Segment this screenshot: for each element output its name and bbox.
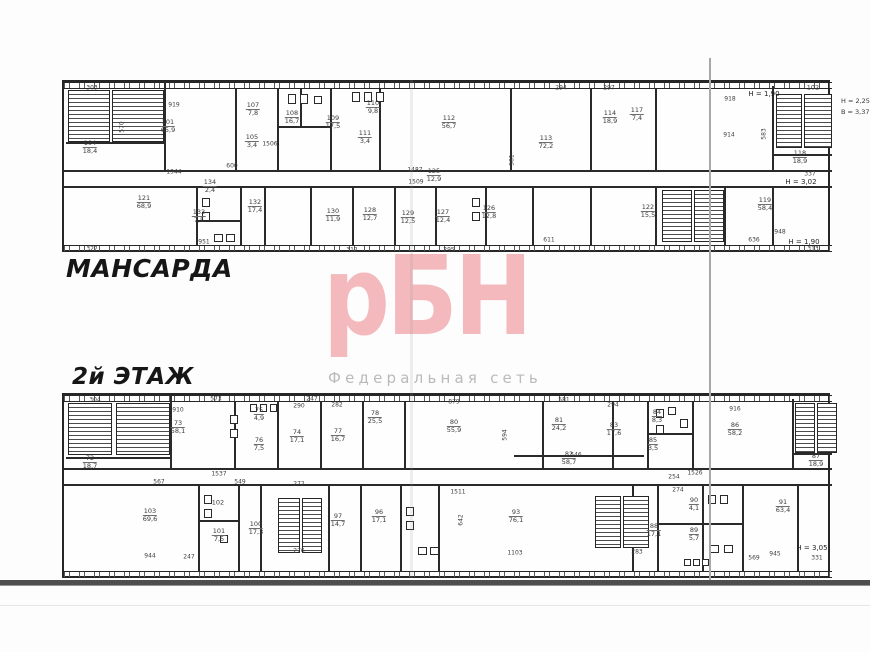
dimension-label: 916	[729, 406, 740, 413]
stairwell	[623, 496, 649, 548]
room-label: 13217,4	[248, 199, 262, 215]
dimension-label: 1103	[507, 550, 522, 557]
floorplan-2nd-floor: 7218,77358,1754,9767,57417,17716,77825,5…	[62, 393, 830, 578]
interior-wall	[438, 486, 440, 571]
dimension-label: 910	[172, 407, 183, 414]
dimension-label: 919	[168, 102, 179, 109]
room-label: 9617,1	[372, 509, 386, 525]
dimension-label: 546	[570, 452, 581, 459]
dimension-label: 1506	[262, 141, 277, 148]
room-label: 9714,7	[331, 513, 345, 529]
dimension-label: 331	[811, 555, 822, 562]
dimension-label: 951	[198, 239, 209, 246]
wc-fixture	[230, 429, 238, 438]
interior-wall	[277, 402, 279, 468]
dimension-label: 918	[724, 96, 735, 103]
room-label: 13011,9	[326, 208, 340, 224]
room-label: 895,7	[689, 527, 699, 543]
plan-label-2nd-floor: 2й ЭТАЖ	[72, 364, 194, 390]
interior-wall	[797, 486, 799, 571]
interior-wall	[590, 89, 592, 170]
interior-wall	[277, 89, 279, 170]
interior-wall	[64, 468, 832, 470]
dimension-label: 583	[761, 128, 768, 139]
room-label: 102	[212, 499, 224, 506]
wc-fixture	[656, 425, 664, 434]
height-annotation: Н = 1,90	[788, 238, 819, 246]
wc-fixture	[668, 407, 676, 415]
fold-crease-line	[709, 58, 711, 586]
watermark-subtitle: Федеральная сеть	[328, 369, 542, 387]
interior-wall	[655, 89, 657, 170]
plan-label-mansarda: МАНСАРДА	[66, 254, 233, 283]
dimension-label: 294	[555, 85, 566, 92]
room-label: 7716,7	[331, 428, 345, 444]
interior-wall	[310, 188, 312, 246]
margin-height-annotation: Н = 2,25 В = 3,37	[841, 96, 870, 118]
room-label: 7218,7	[83, 455, 97, 471]
wc-fixture	[702, 559, 709, 566]
room-label: 11958,4	[758, 197, 772, 213]
dimension-label: 1511	[450, 489, 465, 496]
room-label: 8055,9	[447, 419, 461, 435]
wc-fixture	[202, 198, 210, 207]
height-annotation: Н = 3,02	[785, 178, 816, 186]
interior-wall	[235, 89, 237, 170]
watermark-logo: рБН	[323, 241, 529, 351]
room-label: 10165,9	[161, 119, 175, 135]
room-label: 11818,9	[793, 150, 807, 166]
interior-wall	[647, 433, 692, 435]
room-label: 12168,9	[137, 195, 151, 211]
room-label: 7358,1	[171, 420, 185, 436]
room-label: 10369,6	[143, 508, 157, 524]
room-label: 1077,8	[246, 102, 260, 118]
dimension-label: 276	[293, 548, 304, 555]
stairwell	[112, 90, 164, 142]
interior-wall	[792, 399, 794, 470]
room-label: 8658,2	[728, 422, 742, 438]
wc-fixture	[214, 234, 223, 242]
dimension-label: 573	[210, 396, 221, 403]
room-label: 11372,2	[539, 135, 553, 151]
room-label: 853,5	[648, 437, 658, 453]
room-label: 12612,8	[482, 205, 496, 221]
interior-wall	[772, 188, 774, 246]
room-label: 754,9	[254, 407, 264, 423]
interior-wall	[362, 402, 364, 468]
interior-wall	[692, 402, 694, 468]
wc-fixture	[314, 96, 322, 104]
interior-wall	[772, 86, 774, 172]
room-label: 1342,4	[203, 179, 217, 195]
dimension-label: 247	[183, 554, 194, 561]
dimension-label: 283	[631, 549, 642, 556]
dimension-label: 290	[293, 403, 304, 410]
room-label: 848,3	[652, 409, 662, 425]
dimension-label: 945	[769, 551, 780, 558]
stairwell	[662, 190, 692, 242]
room-label: 1017,5	[212, 528, 226, 544]
room-label: 10017,3	[249, 521, 263, 537]
dimension-label: 294	[607, 402, 618, 409]
interior-wall	[198, 486, 200, 571]
dimension-label: 337	[804, 171, 815, 178]
room-label: 12712,4	[436, 209, 450, 225]
dimension-label: 570	[119, 121, 126, 132]
interior-wall	[264, 188, 266, 246]
page-bottom-edge	[0, 605, 870, 606]
interior-wall	[66, 142, 166, 144]
interior-wall	[64, 484, 832, 486]
interior-wall	[240, 188, 242, 246]
interior-wall	[532, 188, 534, 246]
dimension-label: 567	[153, 479, 164, 486]
dimension-label: 594	[502, 429, 509, 440]
room-label: 12812,7	[363, 207, 377, 223]
wc-fixture	[288, 94, 296, 104]
wc-fixture	[418, 547, 427, 555]
dimension-label: 313	[807, 246, 818, 253]
stairwell	[776, 94, 802, 148]
dimension-label: 1526	[687, 470, 702, 477]
height-note-line2: В = 3,37	[841, 107, 870, 118]
wc-fixture	[270, 404, 277, 412]
wc-fixture	[720, 495, 728, 504]
room-label: 1113,4	[358, 130, 372, 146]
wc-fixture	[204, 509, 212, 518]
wc-fixture	[724, 545, 733, 553]
dimension-label: 600	[226, 163, 237, 170]
dimension-label: 272	[293, 481, 304, 488]
interior-wall	[542, 402, 544, 468]
paper-crease	[410, 80, 413, 578]
interior-wall	[320, 402, 322, 468]
room-label: 9163,4	[776, 499, 790, 515]
wc-fixture	[693, 559, 700, 566]
window-band	[64, 571, 832, 578]
room-label: 8817,1	[647, 523, 661, 539]
room-label: 7417,1	[290, 429, 304, 445]
dimension-label: 304	[89, 397, 100, 404]
room-label: 12912,5	[401, 210, 415, 226]
room-label: 12512,9	[427, 168, 441, 184]
interior-wall	[724, 188, 726, 246]
room-label: 10917,5	[326, 115, 340, 131]
interior-wall	[404, 402, 406, 468]
interior-wall	[590, 188, 592, 246]
room-label: 1177,4	[630, 107, 644, 123]
room-label: 767,5	[254, 437, 264, 453]
stairwell	[817, 403, 837, 453]
dimension-label: 247	[306, 396, 317, 403]
dimension-label: 944	[144, 553, 155, 560]
wc-fixture	[300, 94, 308, 104]
dimension-label: 303	[86, 85, 97, 92]
dimension-label: 282	[331, 402, 342, 409]
dimension-label: 322	[86, 246, 97, 253]
dimension-label: 611	[543, 237, 554, 244]
wc-fixture	[680, 419, 688, 428]
room-label: 11256,7	[442, 115, 456, 131]
stairwell	[116, 403, 170, 455]
room-label: 7825,5	[368, 410, 382, 426]
stairwell	[804, 94, 832, 148]
scanned-floorplan-page: 10418,410165,91077,81053,410816,710917,5…	[0, 0, 870, 652]
stairwell	[795, 403, 815, 453]
dimension-label: 254	[668, 474, 679, 481]
height-annotation: Н = 1,90	[748, 90, 779, 98]
interior-wall	[360, 486, 362, 571]
wc-fixture	[230, 415, 238, 424]
interior-wall	[64, 186, 832, 188]
room-label: 102	[807, 84, 819, 91]
wc-fixture	[472, 212, 480, 221]
stairwell	[595, 496, 621, 548]
wc-fixture	[710, 545, 719, 553]
dimension-label: 636	[748, 237, 759, 244]
wc-fixture	[472, 198, 480, 207]
stairwell	[302, 498, 322, 553]
height-note-line1: Н = 2,25	[841, 96, 870, 107]
stairwell	[68, 90, 110, 142]
height-annotation: Н = 3,05	[796, 544, 827, 552]
room-label: 9376,1	[509, 509, 523, 525]
stairwell	[278, 498, 300, 553]
wc-fixture	[226, 234, 235, 242]
interior-wall	[400, 486, 402, 571]
dimension-label: 642	[458, 514, 465, 525]
dimension-label: 297	[603, 85, 614, 92]
dimension-label: 581	[509, 154, 516, 165]
interior-wall	[238, 486, 240, 571]
wc-fixture	[430, 547, 439, 555]
dimension-label: 1537	[211, 471, 226, 478]
scan-edge-shadow	[0, 585, 870, 586]
interior-wall	[655, 188, 657, 246]
interior-wall	[647, 402, 649, 468]
room-label: 8317,6	[607, 422, 621, 438]
room-label: 10418,4	[83, 140, 97, 156]
wc-fixture	[684, 559, 691, 566]
wc-fixture	[352, 92, 360, 102]
dimension-label: 274	[672, 487, 683, 494]
floorplan-mansarda: 10418,410165,91077,81053,410816,710917,5…	[62, 80, 830, 252]
interior-wall	[66, 457, 170, 459]
room-label: 10816,7	[285, 110, 299, 126]
dimension-label: 581	[558, 397, 569, 404]
room-label: 11418,9	[603, 110, 617, 126]
room-label: 1337,5	[192, 209, 206, 225]
dimension-label: 948	[774, 229, 785, 236]
room-label: 1109,8	[366, 100, 380, 116]
room-label: 904,1	[689, 497, 699, 513]
interior-wall	[328, 486, 330, 571]
room-label: 12215,5	[641, 204, 655, 220]
dimension-label: 879	[448, 399, 459, 406]
interior-wall	[657, 523, 742, 525]
dimension-label: 549	[234, 479, 245, 486]
room-label: 8124,2	[552, 417, 566, 433]
window-band	[64, 82, 832, 89]
room-label: 1053,4	[245, 134, 259, 150]
dimension-label: 1944	[166, 169, 181, 176]
interior-wall	[198, 520, 238, 522]
interior-wall	[742, 486, 744, 571]
dimension-label: 569	[748, 555, 759, 562]
stairwell	[68, 403, 112, 455]
interior-wall	[277, 126, 332, 128]
room-label: 8718,9	[809, 453, 823, 469]
dimension-label: 914	[723, 132, 734, 139]
